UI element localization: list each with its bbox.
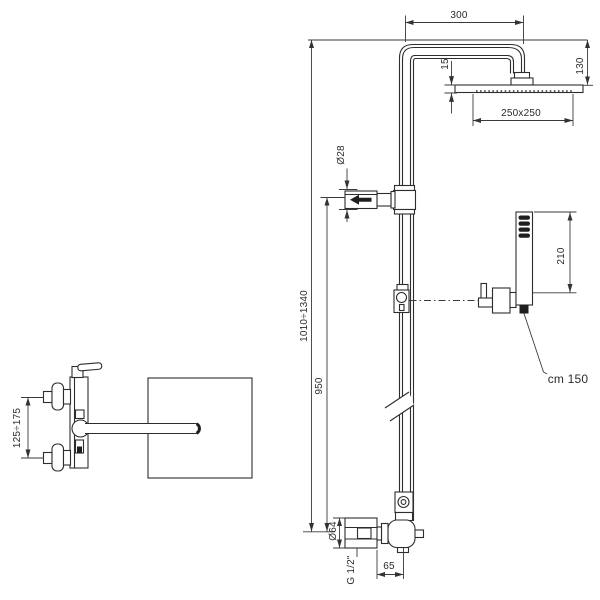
mixer-union-bottom (44, 444, 71, 471)
hand-shower-wand (516, 212, 533, 305)
dim-label-mixer-spacing: 125÷175 (13, 408, 23, 448)
dim-label-flange-diameter: Ø64 (329, 521, 339, 541)
dim-label-riser-height: 950 (315, 377, 325, 394)
dim-label-height-range: 1010÷1340 (300, 290, 310, 342)
hose-length-label: cm 150 (548, 373, 589, 385)
thread-size-label: G 1/2" (347, 555, 357, 584)
mixer-spout (85, 424, 199, 434)
dim-label-handshower: 210 (557, 247, 567, 264)
dim-label-pipe-diameter: Ø28 (337, 145, 347, 165)
wall-flange (345, 518, 388, 548)
hose-nut (520, 305, 529, 314)
dim-label-head-height: 130 (576, 57, 586, 74)
head-connector (511, 78, 533, 85)
mixer-union-top (44, 383, 71, 410)
technical-drawing-canvas: 300 130 15 250x250 Ø28 1010÷1340 950 210… (0, 0, 600, 600)
slider-knob (397, 293, 407, 303)
dim-label-head-size: 250x250 (501, 109, 541, 119)
hand-shower (516, 212, 533, 314)
bracket-screw-icon (398, 497, 409, 508)
rain-shower-head (455, 73, 583, 93)
hose-leader-line (524, 314, 547, 375)
head-plate (455, 85, 583, 93)
dim-label-arm-projection: 300 (450, 11, 467, 21)
head-connector-top (515, 73, 530, 79)
wall-mixer (44, 363, 200, 471)
bottom-supply-elbow (388, 513, 424, 553)
wall-bracket (395, 492, 413, 513)
mixer-lever-handle (78, 363, 102, 372)
hand-shower-holder (479, 284, 517, 314)
dim-label-head-thickness: 15 (441, 58, 451, 70)
slider-bracket (394, 285, 409, 313)
dim-label-wall-offset: 65 (383, 562, 395, 572)
spout-end (197, 424, 200, 434)
